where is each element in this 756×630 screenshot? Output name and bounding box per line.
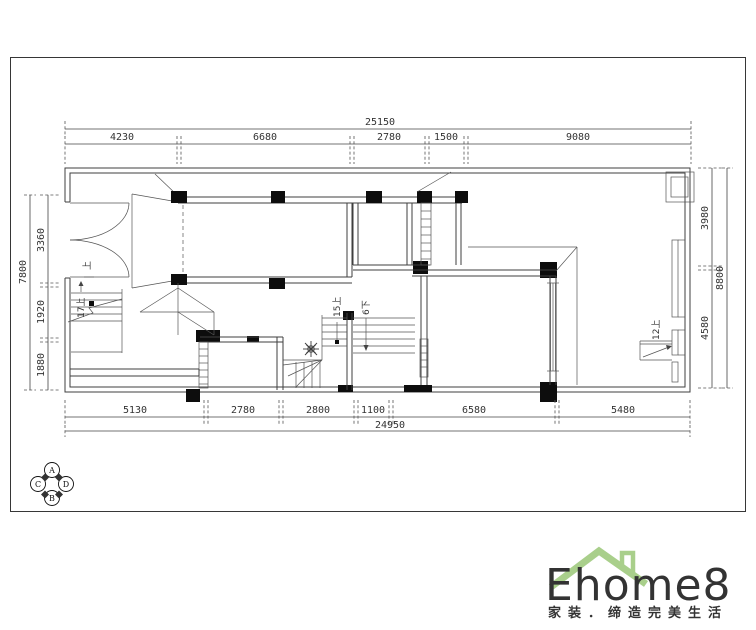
dim-top-segment: 4230	[110, 132, 134, 143]
stair-label-15-up: 15上	[332, 297, 343, 317]
dim-top-total: 25150	[365, 117, 395, 128]
stair-label-17-up: 17上	[76, 298, 87, 318]
dim-left-total: 7800	[18, 260, 29, 284]
room-right-center	[412, 270, 559, 385]
dim-bottom-segment: 6580	[462, 405, 486, 416]
dim-right-total: 8800	[715, 266, 726, 290]
dimension-left: 3360 1920 1880 7800	[18, 195, 60, 390]
rooms-top-middle	[353, 172, 461, 270]
dim-bottom-segment: 5480	[611, 405, 635, 416]
dim-left-segment: 3360	[36, 228, 47, 252]
dim-right-segment: 4580	[700, 316, 711, 340]
room-bottom-center	[199, 337, 283, 390]
dim-bottom-segment: 5130	[123, 405, 147, 416]
logo: Ehome8 家装．缔造完美生活	[545, 551, 732, 621]
index-letter-b: B	[49, 494, 55, 503]
dim-bottom-segment: 1100	[361, 405, 385, 416]
dim-top-segment: 9080	[566, 132, 590, 143]
index-letter-c: C	[35, 480, 41, 489]
logo-brand: Ehome8	[545, 560, 732, 611]
floor-plan-drawing: 上 17上	[0, 0, 756, 630]
center-staircase	[283, 313, 415, 390]
entry-step-label: 上	[82, 261, 93, 270]
dim-left-segment: 1880	[36, 353, 47, 377]
dim-right-segment: 3980	[700, 206, 711, 230]
stair-label-12-up: 12上	[651, 320, 662, 340]
plant-symbol	[303, 341, 319, 357]
floor-plan-sheet: 上 17上	[0, 0, 756, 630]
index-letter-d: D	[63, 480, 69, 489]
columns	[171, 191, 557, 402]
void-edge-lines	[468, 247, 577, 385]
dim-top-segment: 1500	[434, 132, 458, 143]
stair-label-6-down: 6下	[362, 300, 372, 315]
dimension-right: 3980 4580 8800	[698, 168, 733, 388]
dim-top-segment: 6680	[253, 132, 277, 143]
dim-bottom-total: 24950	[375, 420, 405, 431]
dim-bottom-segment: 2800	[306, 405, 330, 416]
bench-band	[70, 369, 199, 376]
logo-tagline: 家装．缔造完美生活	[548, 605, 728, 621]
right-side-details	[640, 172, 694, 382]
roof-slope-lines	[140, 283, 214, 335]
index-letter-a: A	[48, 466, 55, 475]
dim-left-segment: 1920	[36, 300, 47, 324]
dim-bottom-segment: 2780	[231, 405, 255, 416]
dim-top-segment: 2780	[377, 132, 401, 143]
entry-double-door	[70, 203, 129, 277]
elevation-index-symbol: A C D B	[31, 463, 74, 506]
dimension-bottom: 5130 2780 2800 1100 6580 5480 24950	[65, 400, 690, 437]
dimension-top: 25150 4230 6680 2780 1500 9080	[65, 117, 691, 164]
